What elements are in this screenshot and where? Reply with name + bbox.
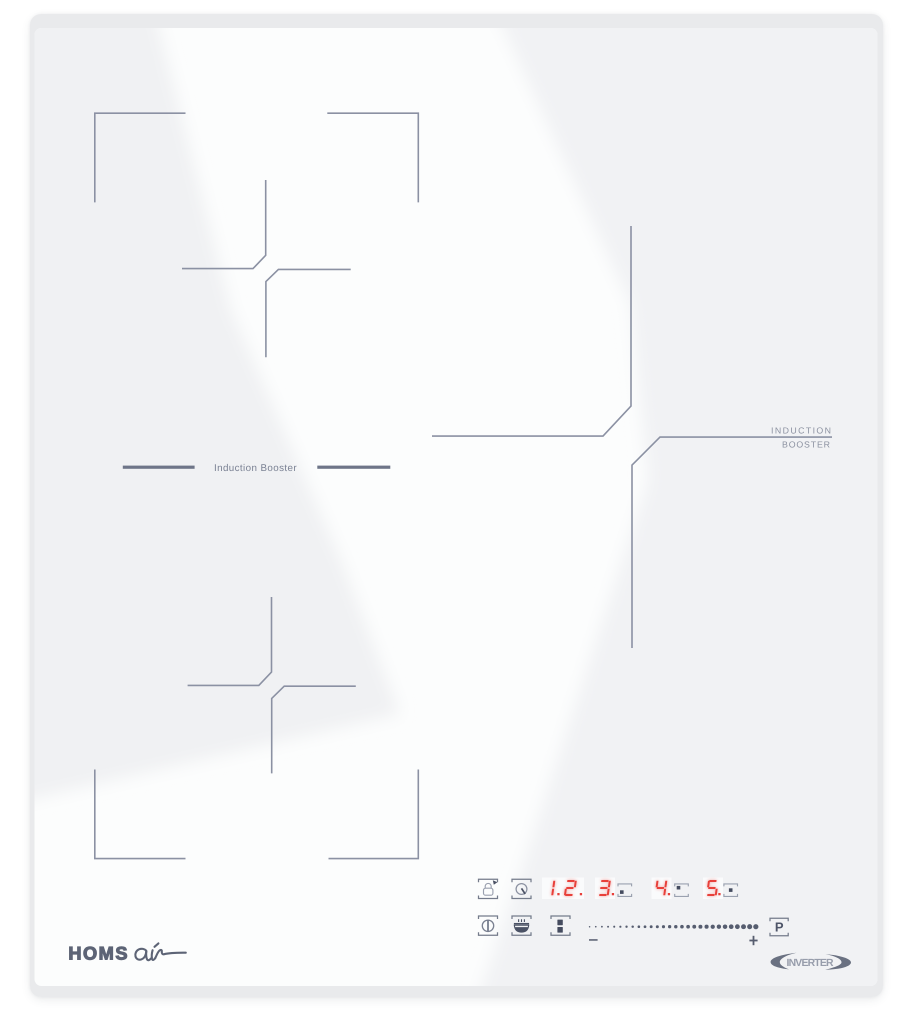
svg-text:INDUCTION: INDUCTION xyxy=(771,426,832,436)
svg-text:BOOSTER: BOOSTER xyxy=(782,440,831,450)
svg-text:INVERTER: INVERTER xyxy=(787,958,834,969)
svg-text:HOMS: HOMS xyxy=(68,944,129,964)
svg-text:P: P xyxy=(775,919,784,934)
svg-text:Induction Booster: Induction Booster xyxy=(214,463,297,474)
